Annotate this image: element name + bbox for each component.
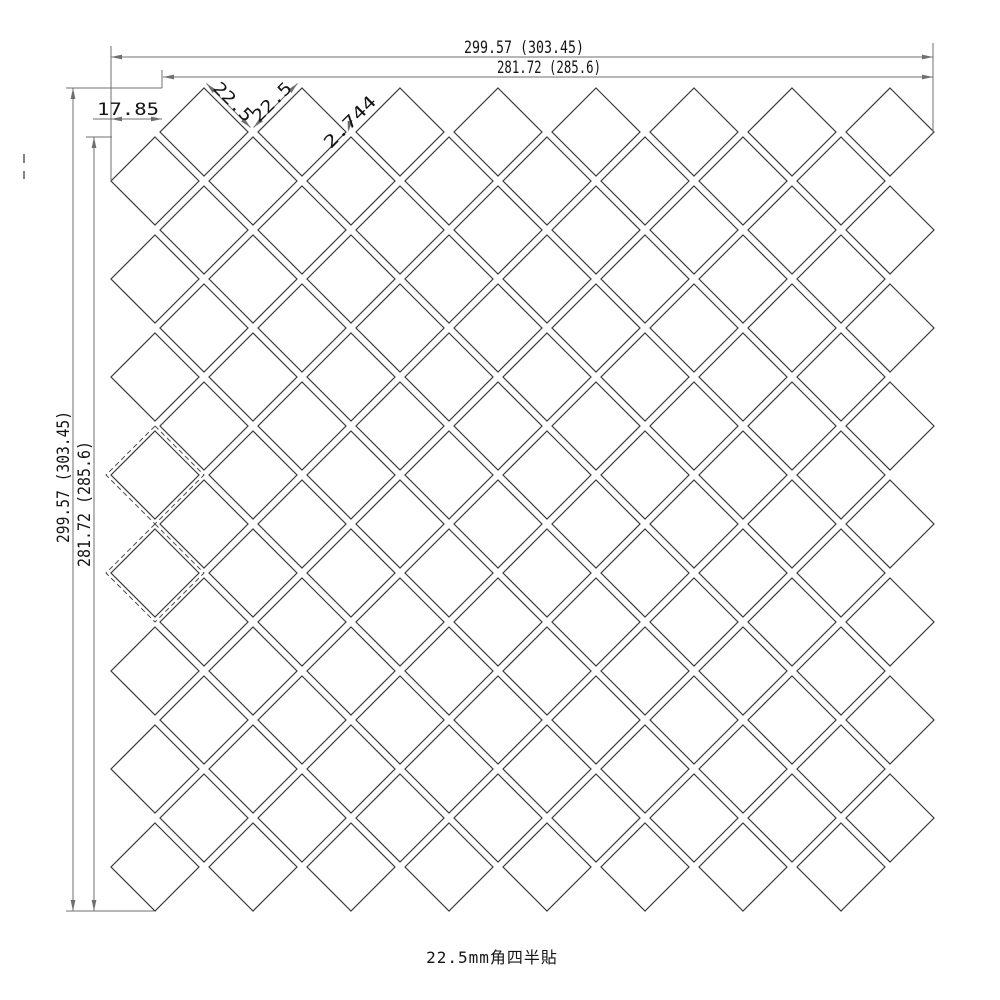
dim-top-outer: 299.57 (303.45) bbox=[111, 38, 933, 59]
tile-diamond bbox=[699, 235, 787, 323]
tile-diamond bbox=[650, 774, 738, 862]
tile-diamond bbox=[258, 774, 346, 862]
tile-diamond bbox=[699, 137, 787, 225]
tile-diamond bbox=[846, 774, 934, 862]
tile-diamond bbox=[748, 774, 836, 862]
tile-diamond bbox=[503, 823, 591, 911]
dim-tile-edge-1: 22.5 bbox=[207, 78, 257, 127]
tile-diamond bbox=[111, 333, 199, 421]
tile-diamond bbox=[503, 431, 591, 519]
tile-diamond bbox=[601, 431, 689, 519]
tile-diamond bbox=[650, 578, 738, 666]
tile-diamond bbox=[209, 235, 297, 323]
tile-diamond bbox=[552, 676, 640, 764]
tile-diamond bbox=[111, 627, 199, 715]
tile-diamond bbox=[111, 235, 199, 323]
tile-diamond bbox=[258, 186, 346, 274]
tile-diamond bbox=[552, 774, 640, 862]
drawing-caption: 22.5mm角四半貼 bbox=[0, 944, 984, 968]
tile-diamond bbox=[209, 823, 297, 911]
tile-diamond bbox=[601, 725, 689, 813]
tile-diamond bbox=[454, 480, 542, 568]
tile-diamond bbox=[748, 480, 836, 568]
tile-diamond bbox=[699, 725, 787, 813]
tile-diamond bbox=[503, 137, 591, 225]
dim-tile-edge-2: 22.5 bbox=[248, 78, 297, 127]
tile-grid bbox=[111, 88, 934, 911]
tile-diamond bbox=[650, 382, 738, 470]
tile-diamond bbox=[503, 529, 591, 617]
tile-diamond bbox=[797, 627, 885, 715]
dimension-arrow bbox=[922, 75, 933, 80]
dimension-label: 22.5 bbox=[248, 78, 296, 126]
tile-diamond bbox=[748, 676, 836, 764]
tile-diamond bbox=[405, 431, 493, 519]
dimension-label: 22.5 bbox=[208, 78, 256, 126]
tile-diamond bbox=[405, 725, 493, 813]
tile-diamond bbox=[454, 88, 542, 176]
tile-diamond bbox=[846, 284, 934, 372]
tile-diamond bbox=[552, 578, 640, 666]
tile-diamond bbox=[160, 284, 248, 372]
tile-diamond bbox=[160, 186, 248, 274]
tile-diamond bbox=[405, 627, 493, 715]
tile-diamond bbox=[160, 382, 248, 470]
tile-diamond bbox=[356, 676, 444, 764]
tile-diamond bbox=[846, 676, 934, 764]
tile-diamond bbox=[209, 529, 297, 617]
tile-diamond bbox=[405, 235, 493, 323]
dimension-label: 2.744 bbox=[320, 92, 381, 153]
tile-diamond bbox=[307, 333, 395, 421]
tile-diamond bbox=[503, 725, 591, 813]
tile-diamond bbox=[748, 88, 836, 176]
tile-diamond bbox=[307, 823, 395, 911]
tile-diamond bbox=[111, 823, 199, 911]
tile-diamond bbox=[111, 725, 199, 813]
tile-diamond bbox=[748, 382, 836, 470]
dashed-cell-outline bbox=[106, 524, 204, 622]
tile-diamond bbox=[846, 186, 934, 274]
tile-diamond bbox=[846, 88, 934, 176]
dimension-annotations: 299.57 (303.45)281.72 (285.6)299.57 (303… bbox=[54, 38, 933, 911]
dimension-label: 281.72 (285.6) bbox=[497, 58, 601, 78]
tile-diamond bbox=[454, 382, 542, 470]
tile-diamond bbox=[748, 578, 836, 666]
tile-diamond bbox=[356, 382, 444, 470]
tile-diamond bbox=[552, 480, 640, 568]
tile-diamond bbox=[797, 137, 885, 225]
drawing-canvas: 299.57 (303.45)281.72 (285.6)299.57 (303… bbox=[0, 0, 1000, 1000]
tile-diamond bbox=[503, 627, 591, 715]
tile-diamond bbox=[650, 88, 738, 176]
tile-diamond bbox=[650, 480, 738, 568]
tile-diamond bbox=[454, 578, 542, 666]
tile-diamond bbox=[209, 627, 297, 715]
tile-diamond bbox=[356, 284, 444, 372]
tile-diamond bbox=[209, 137, 297, 225]
dim-left-offset: 17.85 bbox=[93, 100, 162, 121]
tile-diamond bbox=[846, 382, 934, 470]
tile-diamond bbox=[258, 382, 346, 470]
tile-diamond bbox=[307, 137, 395, 225]
tile-diamond bbox=[797, 823, 885, 911]
dim-left-inner: 281.72 (285.6) bbox=[75, 137, 96, 911]
tile-diamond bbox=[209, 333, 297, 421]
dim-left-outer: 299.57 (303.45) bbox=[54, 88, 75, 911]
tile-diamond bbox=[209, 431, 297, 519]
dimension-arrow bbox=[92, 137, 97, 148]
tile-diamond bbox=[748, 186, 836, 274]
tile-diamond bbox=[601, 333, 689, 421]
tile-diamond bbox=[699, 431, 787, 519]
tile-diamond bbox=[160, 480, 248, 568]
tile-diamond bbox=[356, 480, 444, 568]
tile-diamond bbox=[111, 137, 199, 225]
tile-diamond bbox=[650, 676, 738, 764]
dimension-arrow bbox=[922, 55, 933, 60]
tile-diamond bbox=[846, 480, 934, 568]
tile-diamond bbox=[405, 529, 493, 617]
tile-diamond bbox=[797, 431, 885, 519]
tile-diamond bbox=[258, 284, 346, 372]
tile-diamond bbox=[258, 578, 346, 666]
tile-diamond bbox=[454, 774, 542, 862]
dashed-cell-outline bbox=[106, 426, 204, 524]
tile-diamond bbox=[258, 676, 346, 764]
dimension-arrow bbox=[71, 88, 76, 99]
tile-diamond bbox=[454, 676, 542, 764]
tile-diamond bbox=[356, 578, 444, 666]
tile-diamond bbox=[111, 529, 199, 617]
tile-diamond bbox=[601, 235, 689, 323]
tile-diamond bbox=[699, 627, 787, 715]
tile-diamond bbox=[552, 382, 640, 470]
tile-diamond bbox=[650, 284, 738, 372]
tile-diamond bbox=[601, 627, 689, 715]
tile-diamond bbox=[307, 235, 395, 323]
dim-top-inner: 281.72 (285.6) bbox=[163, 58, 933, 79]
dim-joint: 2.744 bbox=[320, 92, 381, 153]
tile-diamond bbox=[307, 431, 395, 519]
tile-diamond bbox=[258, 480, 346, 568]
dimension-label: 17.85 bbox=[97, 100, 159, 120]
dimension-arrow bbox=[163, 75, 174, 80]
tile-diamond bbox=[503, 235, 591, 323]
tile-layout-drawing: 299.57 (303.45)281.72 (285.6)299.57 (303… bbox=[0, 0, 1000, 1000]
tile-diamond bbox=[356, 186, 444, 274]
tile-diamond bbox=[454, 284, 542, 372]
tile-diamond bbox=[454, 186, 542, 274]
tile-diamond bbox=[503, 333, 591, 421]
extension-lines bbox=[66, 43, 933, 911]
tile-diamond bbox=[160, 774, 248, 862]
dimension-arrow bbox=[111, 55, 122, 60]
tile-diamond bbox=[552, 186, 640, 274]
tile-diamond bbox=[552, 284, 640, 372]
dimension-arrow bbox=[71, 900, 76, 911]
tile-diamond bbox=[797, 725, 885, 813]
tile-diamond bbox=[405, 333, 493, 421]
tile-diamond bbox=[650, 186, 738, 274]
tile-diamond bbox=[209, 725, 297, 813]
tile-diamond bbox=[601, 529, 689, 617]
tile-diamond bbox=[699, 529, 787, 617]
tile-diamond bbox=[601, 823, 689, 911]
tile-diamond bbox=[699, 823, 787, 911]
tile-diamond bbox=[797, 529, 885, 617]
tile-diamond bbox=[160, 578, 248, 666]
tile-diamond bbox=[307, 725, 395, 813]
tile-diamond bbox=[748, 284, 836, 372]
dimension-label: 299.57 (303.45) bbox=[54, 411, 74, 543]
tile-diamond bbox=[552, 88, 640, 176]
tile-diamond bbox=[846, 578, 934, 666]
dimension-label: 299.57 (303.45) bbox=[464, 38, 584, 58]
tile-diamond bbox=[111, 431, 199, 519]
dimension-label: 281.72 (285.6) bbox=[75, 441, 95, 567]
tile-diamond bbox=[405, 823, 493, 911]
tile-diamond bbox=[160, 676, 248, 764]
tile-diamond bbox=[307, 529, 395, 617]
tile-diamond bbox=[699, 333, 787, 421]
tile-diamond bbox=[307, 627, 395, 715]
tile-diamond bbox=[601, 137, 689, 225]
tile-diamond bbox=[356, 774, 444, 862]
tile-diamond bbox=[405, 137, 493, 225]
tile-diamond bbox=[797, 235, 885, 323]
dimension-arrow bbox=[92, 900, 97, 911]
tile-diamond bbox=[797, 333, 885, 421]
